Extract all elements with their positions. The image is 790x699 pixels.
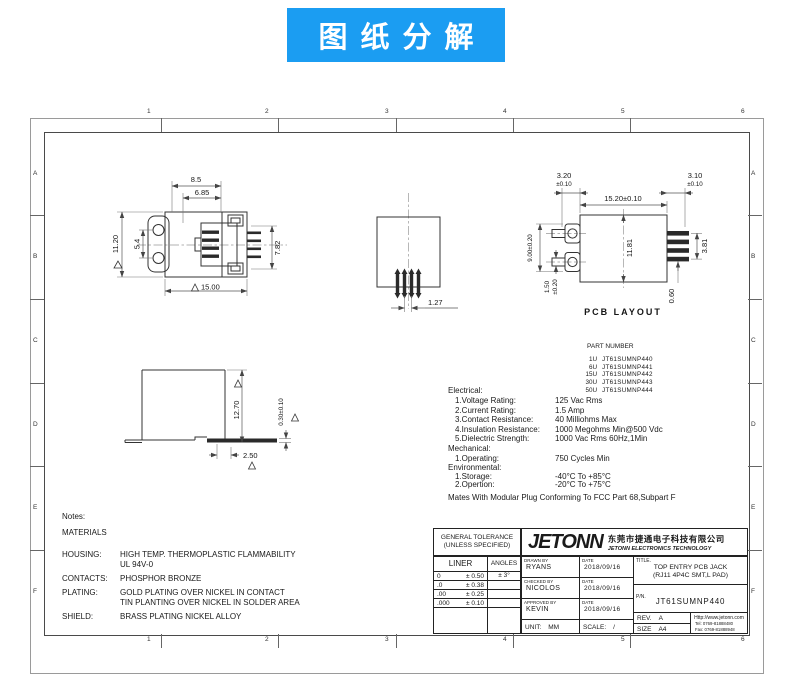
pin (402, 269, 408, 299)
material-row: HOUSING: HIGH TEMP. THERMOPLASTIC FLAMMA… (62, 550, 300, 570)
mechanical-heading: Mechanical: (448, 444, 748, 454)
grid-tick (278, 118, 279, 132)
dim-label: 11.20 (111, 235, 120, 253)
grid-col-label: 4 (503, 636, 507, 643)
dim-label: 12.70 (232, 401, 241, 420)
side-view-drawing: 12.70 0.30±0.10 2.50 (105, 350, 320, 485)
banner-title: 图纸分解 (318, 14, 486, 56)
part-number-cell: P/N. JT61SUMNP440 (633, 584, 748, 613)
approved-by-cell: APPROVED BY KEVIN (521, 598, 580, 620)
spec-row: 4.Insulation Resistance:1000 Megohms Min… (448, 425, 748, 435)
material-row: PLATING: GOLD PLATING OVER NICKEL IN CON… (62, 588, 300, 608)
contact-cell: Http://www.jetonn.com Tel: 0769-81888480… (690, 612, 748, 634)
pin (416, 269, 422, 299)
grid-col-label: 2 (265, 636, 269, 643)
pin (409, 269, 415, 299)
grid-row-label: F (33, 588, 37, 595)
grid-col-label: 2 (265, 108, 269, 115)
dim-label: 15.00 (201, 283, 220, 292)
grid-tick (30, 383, 44, 384)
grid-tick (748, 550, 762, 551)
spec-row: 2.Current Rating:1.5 Amp (448, 406, 748, 416)
grid-tick (513, 118, 514, 132)
part-number-row: 6UJT61SUMNP441 (575, 364, 653, 372)
checked-by-cell: CHECKED BY NICOLOS (521, 577, 580, 599)
grid-col-label: 3 (385, 636, 389, 643)
specifications: Electrical: 1.Voltage Rating:125 Vac Rms… (448, 386, 748, 502)
grid-tick (30, 466, 44, 467)
liner-header: LINER (433, 556, 488, 572)
grid-row-label: D (33, 421, 38, 428)
grid-tick (30, 550, 44, 551)
drawn-by-cell: DRAWN BY RYANS (521, 556, 580, 578)
material-row: SHIELD: BRASS PLATING NICKEL ALLOY (62, 612, 300, 622)
company-logo-cell: JETONN 东莞市捷通电子科技有限公司 JETONN ELECTRONICS … (521, 528, 748, 556)
dim-label: ±0.10 (687, 181, 703, 188)
spec-row: 1.Voltage Rating:125 Vac Rms (448, 396, 748, 406)
grid-row-label: F (751, 588, 755, 595)
title-cell: TITLE. TOP ENTRY PCB JACK (RJ11 4P4C SMT… (633, 556, 748, 585)
dim-label: 2.50 (243, 451, 258, 460)
grid-tick (161, 118, 162, 132)
notes-heading: Notes: (62, 512, 300, 521)
grid-tick (513, 634, 514, 648)
empty-cell (487, 607, 521, 634)
grid-tick (630, 634, 631, 648)
grid-tick (396, 634, 397, 648)
dim-label: 15.20±0.10 (604, 194, 641, 203)
angles-header: ANGLES (487, 556, 521, 572)
grid-col-label: 3 (385, 108, 389, 115)
grid-row-label: E (751, 504, 755, 511)
pcb-layout-label: PCB LAYOUT (584, 307, 662, 317)
spec-row: 5.Dielectric Strength:1000 Vac Rms 60Hz,… (448, 434, 748, 444)
grid-tick (30, 215, 44, 216)
part-number-row: 15UJT61SUMNP442 (575, 371, 653, 379)
size-cell: SIZEA4 (633, 623, 691, 634)
checked-date-cell: DATE 2018/09/16 (579, 577, 634, 599)
page: 图纸分解 1 2 3 4 5 6 1 2 3 4 5 6 A B C D E F… (0, 0, 790, 699)
empty-cell (433, 607, 488, 634)
grid-tick (161, 634, 162, 648)
grid-tick (396, 118, 397, 132)
grid-row-label: D (751, 421, 756, 428)
revision-flag-icon (114, 261, 122, 268)
grid-row-label: A (33, 170, 37, 177)
material-row: CONTACTS: PHOSPHOR BRONZE (62, 574, 300, 584)
electrical-heading: Electrical: (448, 386, 748, 396)
general-tolerance-header: GENERAL TOLERANCE (UNLESS SPECIFIED) (433, 528, 521, 556)
grid-tick (748, 466, 762, 467)
grid-col-label: 5 (621, 108, 625, 115)
dim-label: 3.10 (688, 171, 703, 180)
dim-label: 6.85 (195, 188, 210, 197)
grid-col-label: 4 (503, 108, 507, 115)
dim-label: 7.82 (273, 241, 282, 256)
title-block: GENERAL TOLERANCE (UNLESS SPECIFIED) JET… (433, 528, 748, 634)
unit-cell: UNIT:MM (521, 619, 580, 634)
company-name-cn: 东莞市捷通电子科技有限公司 (608, 533, 725, 545)
dim-label: 11.81 (625, 239, 634, 257)
dim-label: ±0.10 (556, 181, 572, 188)
drawing-title-line1: TOP ENTRY PCB JACK (634, 564, 747, 572)
grid-tick (278, 634, 279, 648)
part-number-value: JT61SUMNP440 (634, 597, 747, 606)
dim-label: 9.00±0.20 (527, 234, 534, 262)
notes-block: Notes: MATERIALS HOUSING: HIGH TEMP. THE… (62, 512, 300, 626)
grid-col-label: 1 (147, 108, 151, 115)
mating-note: Mates With Modular Plug Conforming To FC… (448, 493, 748, 502)
dim-label: 8.5 (191, 175, 201, 184)
dim-label: 5.4 (133, 239, 142, 249)
pin (395, 269, 401, 299)
dim-label: 1.27 (428, 298, 443, 307)
spec-row: 1.Operating:750 Cycles Min (448, 454, 748, 464)
company-name-en: JETONN ELECTRONICS TECHNOLOGY (608, 546, 725, 552)
spec-row: 3.Contact Resistance:40 Milliohms Max (448, 415, 748, 425)
dim-label: 1.50 (544, 280, 551, 293)
approved-date-cell: DATE 2018/09/16 (579, 598, 634, 620)
dim-label: 3.81 (700, 239, 709, 254)
revision-flag-icon (192, 284, 199, 291)
grid-tick (630, 118, 631, 132)
dim-label: 3.20 (557, 171, 572, 180)
grid-row-label: B (33, 253, 37, 260)
spec-row: 2.Opertion:-20°C To +75°C (448, 481, 748, 489)
grid-col-label: 6 (741, 636, 745, 643)
dim-label: 0.60 (667, 289, 676, 304)
front-view-drawing: 8.5 6.85 11.20 5.4 7.82 15.00 (55, 162, 340, 314)
grid-col-label: 5 (621, 636, 625, 643)
fax: Fax: 0769-81888948 (695, 627, 747, 633)
scale-cell: SCALE:/ (579, 619, 634, 634)
grid-row-label: E (33, 504, 37, 511)
grid-row-label: C (751, 337, 756, 344)
grid-tick (30, 299, 44, 300)
revision-flag-icon (249, 462, 256, 469)
jetonn-logo: JETONN (528, 531, 603, 554)
revision-flag-icon (235, 380, 242, 387)
part-number-row: 1UJT61SUMNP440 (575, 356, 653, 364)
drawn-date-cell: DATE 2018/09/16 (579, 556, 634, 578)
dim-label: 0.30±0.10 (278, 398, 285, 426)
materials-heading: MATERIALS (62, 528, 300, 537)
revision-flag-icon (292, 414, 299, 421)
grid-col-label: 6 (741, 108, 745, 115)
section-view-drawing: 1.27 (358, 183, 473, 323)
drawing-title-line2: (RJ11 4P4C SMT,L PAD) (634, 572, 747, 580)
grid-tick (748, 383, 762, 384)
grid-col-label: 1 (147, 636, 151, 643)
dim-label: ±0.20 (552, 279, 559, 295)
grid-row-label: C (33, 337, 38, 344)
part-number-heading: PART NUMBER (587, 343, 653, 350)
banner: 图纸分解 (287, 8, 505, 62)
pcb-layout-drawing: 3.20 ±0.10 15.20±0.10 3.10 ±0.10 9.00±0.… (518, 165, 768, 320)
